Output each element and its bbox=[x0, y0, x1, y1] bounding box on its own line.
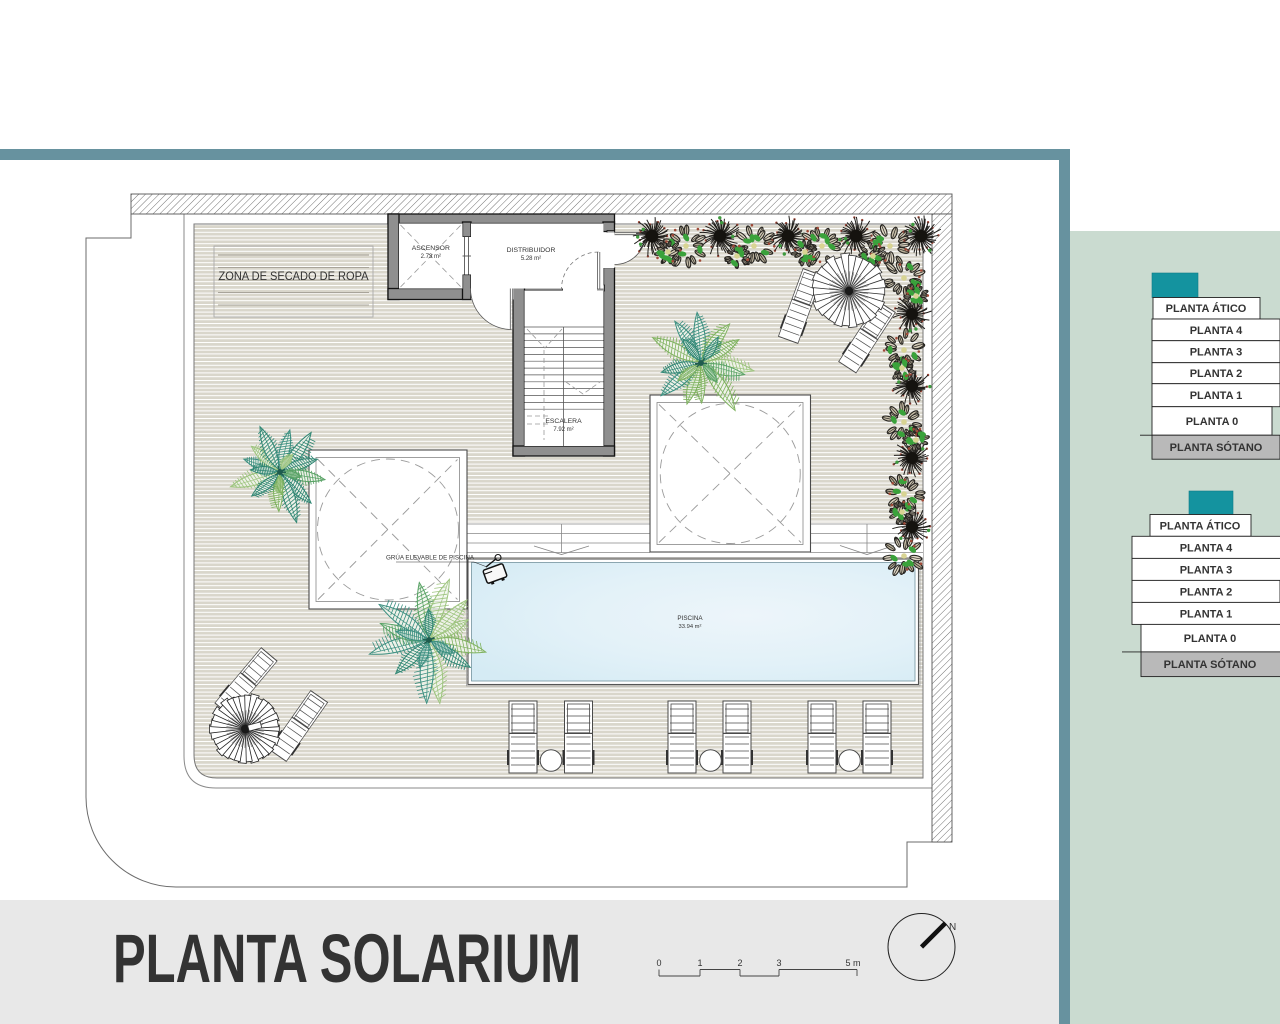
svg-text:ZONA DE SECADO DE ROPA: ZONA DE SECADO DE ROPA bbox=[219, 269, 369, 283]
svg-text:PISCINA: PISCINA bbox=[677, 615, 703, 622]
svg-text:PLANTA 3: PLANTA 3 bbox=[1190, 347, 1243, 359]
svg-text:GRÚA ELEVABLE DE PISCINA: GRÚA ELEVABLE DE PISCINA bbox=[386, 553, 475, 562]
svg-text:0: 0 bbox=[656, 958, 661, 968]
svg-text:PLANTA 1: PLANTA 1 bbox=[1180, 608, 1233, 620]
svg-text:PLANTA SOLARIUM: PLANTA SOLARIUM bbox=[113, 920, 581, 997]
svg-text:PLANTA 1: PLANTA 1 bbox=[1190, 390, 1243, 402]
svg-text:PLANTA 2: PLANTA 2 bbox=[1190, 368, 1243, 380]
svg-text:2: 2 bbox=[737, 958, 742, 968]
svg-text:5.28 m²: 5.28 m² bbox=[521, 256, 541, 262]
svg-text:7.92 m²: 7.92 m² bbox=[553, 427, 573, 433]
svg-text:PLANTA 0: PLANTA 0 bbox=[1184, 633, 1237, 645]
svg-text:3: 3 bbox=[776, 958, 781, 968]
svg-text:PLANTA ÁTICO: PLANTA ÁTICO bbox=[1160, 519, 1241, 532]
svg-text:PLANTA SÓTANO: PLANTA SÓTANO bbox=[1170, 441, 1263, 454]
svg-text:2.73 m²: 2.73 m² bbox=[421, 254, 441, 260]
svg-text:1: 1 bbox=[697, 958, 702, 968]
svg-text:N: N bbox=[949, 922, 956, 933]
svg-text:PLANTA 4: PLANTA 4 bbox=[1190, 325, 1243, 337]
svg-text:33.94 m²: 33.94 m² bbox=[679, 624, 702, 630]
svg-text:PLANTA 3: PLANTA 3 bbox=[1180, 564, 1233, 576]
svg-text:PLANTA ÁTICO: PLANTA ÁTICO bbox=[1166, 302, 1247, 315]
svg-text:PLANTA 2: PLANTA 2 bbox=[1180, 586, 1233, 598]
svg-text:DISTRIBUIDOR: DISTRIBUIDOR bbox=[507, 247, 556, 254]
svg-text:PLANTA 4: PLANTA 4 bbox=[1180, 542, 1233, 554]
svg-text:ASCENSOR: ASCENSOR bbox=[412, 245, 450, 252]
svg-text:5 m: 5 m bbox=[845, 958, 860, 968]
svg-text:ESCALERA: ESCALERA bbox=[545, 418, 582, 425]
svg-text:PLANTA SÓTANO: PLANTA SÓTANO bbox=[1164, 658, 1257, 671]
svg-text:PLANTA 0: PLANTA 0 bbox=[1186, 416, 1239, 428]
